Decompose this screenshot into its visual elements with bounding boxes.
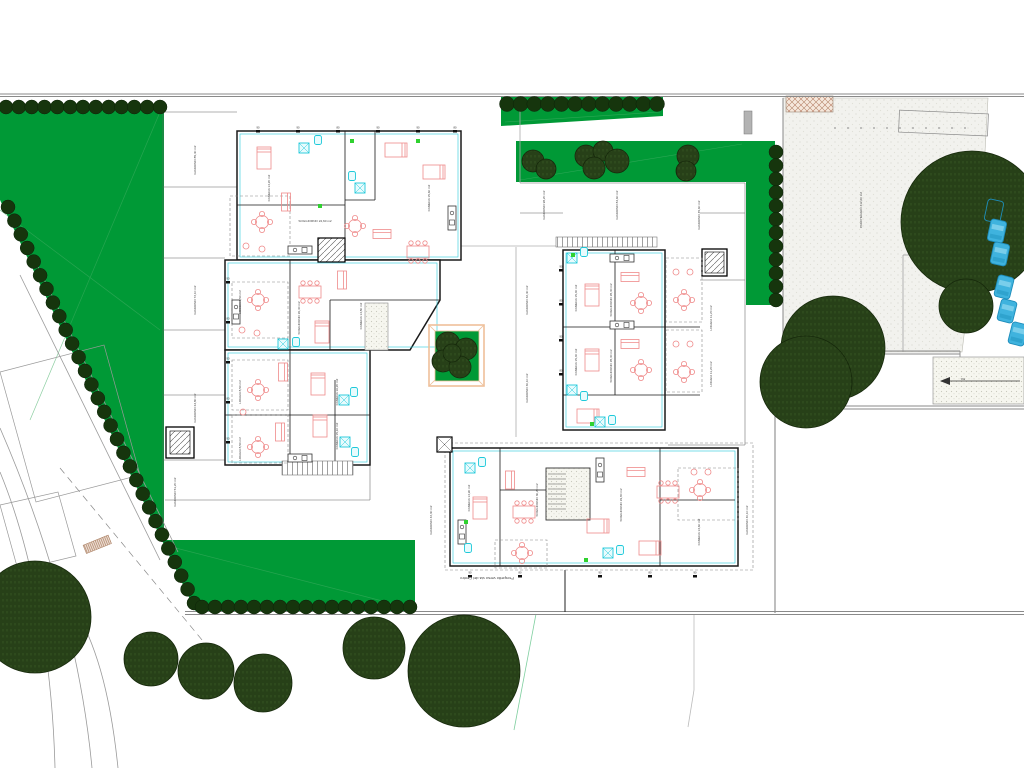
furniture-kit bbox=[288, 246, 312, 254]
plan-label: CAMERA 16,20 m2 bbox=[335, 378, 339, 405]
plan-label: SOGGIORNO 26,40 m2 bbox=[297, 301, 301, 334]
svg-text:80: 80 bbox=[519, 571, 522, 575]
furniture-rtab bbox=[673, 289, 694, 310]
hedge-bush bbox=[102, 100, 116, 114]
hedge-bush bbox=[155, 528, 169, 542]
hedge-bush bbox=[568, 97, 583, 112]
tree bbox=[234, 654, 292, 712]
plan-label: CAMERA 15,40 m2 bbox=[574, 348, 578, 375]
tree bbox=[443, 344, 461, 362]
svg-text:90: 90 bbox=[599, 571, 602, 575]
furniture-chair bbox=[687, 269, 693, 275]
plan-label: CAMERA 14,80 m2 bbox=[359, 302, 363, 329]
hedge-bush bbox=[769, 185, 783, 199]
building-c bbox=[437, 437, 753, 570]
hedge-bush bbox=[636, 97, 651, 112]
hedge-bush bbox=[7, 214, 21, 228]
hedge-bush bbox=[299, 600, 313, 614]
hedge-bush bbox=[142, 500, 156, 514]
plan-label: LOGGIA 11,20 m2 bbox=[709, 305, 713, 330]
hedge-bush bbox=[78, 364, 92, 378]
plan-label: LOGGIA 11,20 m2 bbox=[709, 361, 713, 386]
dim-mark: 90 bbox=[598, 571, 602, 578]
plan-label: SOGGIORNO 29,80 m2 bbox=[619, 488, 623, 521]
furniture-wc bbox=[479, 458, 486, 467]
hedge-bush bbox=[338, 600, 352, 614]
svg-text:80: 80 bbox=[454, 126, 457, 130]
hedge-bush bbox=[153, 100, 167, 114]
hedge-bush bbox=[168, 555, 182, 569]
dim-mark: 90 bbox=[256, 126, 260, 133]
tree bbox=[124, 632, 178, 686]
furniture-grn bbox=[584, 558, 588, 562]
plan-label: CAMERA 13,60 m2 bbox=[697, 518, 701, 545]
furniture-kit bbox=[610, 254, 634, 262]
hedge-bush bbox=[769, 145, 783, 159]
tree bbox=[536, 159, 556, 179]
plan-label: 8% bbox=[961, 377, 966, 381]
hedge-bush bbox=[174, 569, 188, 583]
tree bbox=[676, 161, 696, 181]
plan-label: GIARDINO 51,20 m2 bbox=[173, 477, 177, 506]
plan-label: GIARDINO 42,30 m2 bbox=[429, 505, 433, 534]
stair-core-c bbox=[546, 468, 590, 520]
hedge-bush bbox=[769, 239, 783, 253]
dim-mark: 90 bbox=[559, 265, 563, 272]
hedge-bush bbox=[513, 97, 528, 112]
furniture-grn bbox=[464, 520, 468, 524]
plan-label: PARCHEGGIO 412,60 m2 bbox=[859, 192, 863, 229]
hedge-bush bbox=[769, 266, 783, 280]
furniture-wc bbox=[352, 448, 359, 457]
furniture-wc bbox=[465, 544, 472, 553]
hedge-bush bbox=[33, 268, 47, 282]
car bbox=[997, 298, 1018, 323]
plan-label: LOGGIA 8,50 m2 bbox=[238, 290, 242, 314]
plan-label: GIARDINO 98,20 m2 bbox=[542, 190, 546, 219]
hedge-bush bbox=[14, 227, 28, 241]
plan-label: Prospetto verso via del Centro bbox=[459, 576, 514, 581]
hedge-bush bbox=[136, 487, 150, 501]
building-a bbox=[166, 131, 461, 475]
furniture-rtab bbox=[673, 361, 694, 382]
hedge-bush bbox=[127, 100, 141, 114]
furniture-wc bbox=[609, 416, 616, 425]
plan-label: GIARDINO 45,60 m2 bbox=[697, 200, 701, 229]
hedge-bush bbox=[769, 172, 783, 186]
svg-text:90: 90 bbox=[469, 571, 472, 575]
hedge-bush bbox=[221, 600, 235, 614]
dim-mark: 80 bbox=[559, 369, 563, 376]
hedge-bush bbox=[140, 100, 154, 114]
tree bbox=[760, 336, 852, 428]
dim-mark: 90 bbox=[693, 571, 697, 578]
hedge-bush bbox=[195, 600, 209, 614]
plan-label: CAMERA 14,20 m2 bbox=[267, 174, 271, 201]
svg-text:90: 90 bbox=[297, 126, 300, 130]
hedge-bush bbox=[769, 159, 783, 173]
hedge-bush bbox=[104, 419, 118, 433]
furniture-shower bbox=[603, 548, 613, 558]
stair-tower-b bbox=[702, 249, 727, 276]
hedge-bush bbox=[286, 600, 300, 614]
plan-label: GIARDINO 30,10 m2 bbox=[525, 373, 529, 402]
furniture-wc bbox=[617, 546, 624, 555]
hedge-bush bbox=[38, 100, 52, 114]
tree bbox=[583, 157, 605, 179]
hedge-bush bbox=[52, 309, 66, 323]
svg-text:90: 90 bbox=[377, 126, 380, 130]
dim-mark: 80 bbox=[648, 571, 652, 578]
planter-shaft bbox=[437, 437, 452, 452]
dim-mark: 90 bbox=[226, 277, 230, 284]
svg-text:80: 80 bbox=[649, 571, 652, 575]
furniture-wc bbox=[581, 248, 588, 257]
furniture-kit bbox=[596, 458, 604, 482]
hedge-bush bbox=[527, 97, 542, 112]
dim-mark: 80 bbox=[226, 317, 230, 324]
hedge-bush bbox=[97, 405, 111, 419]
dim-mark: 90 bbox=[226, 357, 230, 364]
plan-label: GIARDINO 72,10 m2 bbox=[193, 285, 197, 314]
plan-label: GIARDINO 85,40 m2 bbox=[193, 145, 197, 174]
hedge-bush bbox=[59, 323, 73, 337]
hedge-bush bbox=[50, 100, 64, 114]
hedge-bush bbox=[650, 97, 665, 112]
furniture-grn bbox=[571, 253, 575, 257]
hedge-bush bbox=[0, 100, 13, 114]
hedge-bush bbox=[769, 199, 783, 213]
svg-text:90: 90 bbox=[257, 126, 260, 130]
building-b bbox=[556, 237, 727, 430]
hedge-bush bbox=[234, 600, 248, 614]
svg-text:90: 90 bbox=[417, 126, 420, 130]
hedge-bush bbox=[312, 600, 326, 614]
hedge-bush bbox=[91, 391, 105, 405]
furniture-kit bbox=[288, 454, 312, 462]
plan-label: GIARDINO 64,80 m2 bbox=[193, 393, 197, 422]
tree bbox=[0, 561, 91, 673]
hedge-bush bbox=[769, 280, 783, 294]
furniture-wc bbox=[315, 136, 322, 145]
furniture-shower bbox=[567, 385, 577, 395]
hedge-bush bbox=[769, 212, 783, 226]
plan-label: LOGGIA 8,50 m2 bbox=[238, 437, 242, 461]
plan-label: GIARDINO 40,10 m2 bbox=[745, 505, 749, 534]
hedge-bush bbox=[63, 100, 77, 114]
hedge-bush bbox=[325, 600, 339, 614]
dim-mark: 80 bbox=[559, 299, 563, 306]
dim-mark: 80 bbox=[226, 397, 230, 404]
dim-mark: 90 bbox=[296, 126, 300, 133]
hedge-bush bbox=[110, 432, 124, 446]
furniture-grn bbox=[318, 204, 322, 208]
furniture-shower bbox=[465, 463, 475, 473]
hedge-bush bbox=[609, 97, 624, 112]
dim-mark: 80 bbox=[453, 126, 457, 133]
hedge-bush bbox=[116, 446, 130, 460]
tree bbox=[178, 643, 234, 699]
hedge-bush bbox=[27, 255, 41, 269]
hedge-bush bbox=[1, 200, 15, 214]
furniture-grn bbox=[416, 139, 420, 143]
loggias-b bbox=[666, 258, 702, 392]
hedge-bush bbox=[76, 100, 90, 114]
dim-mark: 90 bbox=[376, 126, 380, 133]
hedge-bush bbox=[769, 293, 783, 307]
plan-label: SOGGIORNO 30,20 m2 bbox=[535, 483, 539, 516]
furniture-kit bbox=[610, 321, 634, 329]
hedge-bush bbox=[25, 100, 39, 114]
furniture-shower bbox=[595, 417, 605, 427]
hedge-bush bbox=[46, 296, 60, 310]
dim-mark: 80 bbox=[336, 126, 340, 133]
furniture-shower bbox=[339, 395, 349, 405]
hedge-bush bbox=[595, 97, 610, 112]
furniture-chair bbox=[687, 341, 693, 347]
dim-mark: 90 bbox=[226, 437, 230, 444]
furniture-chair bbox=[673, 341, 679, 347]
walkway-steps-b bbox=[556, 237, 657, 247]
plan-label: CAMERA 15,60 m2 bbox=[427, 184, 431, 211]
furniture-kit bbox=[448, 206, 456, 230]
hedge-bush bbox=[89, 100, 103, 114]
svg-text:90: 90 bbox=[694, 571, 697, 575]
furniture-grn bbox=[590, 422, 594, 426]
furniture-wc bbox=[349, 172, 356, 181]
hedge-bush bbox=[161, 541, 175, 555]
hedge-bush bbox=[622, 97, 637, 112]
hedge-bush bbox=[554, 97, 569, 112]
plan-label: CAMERA 15,10 m2 bbox=[335, 422, 339, 449]
dim-mark: 90 bbox=[559, 335, 563, 342]
entry-ramp-hatched bbox=[786, 96, 833, 112]
tree bbox=[939, 279, 993, 333]
stair-tower bbox=[166, 427, 194, 458]
furniture-wc bbox=[581, 392, 588, 401]
hedge-bush bbox=[247, 600, 261, 614]
hedge-bush bbox=[149, 514, 163, 528]
furniture-chair bbox=[673, 269, 679, 275]
hedge-bush bbox=[12, 100, 26, 114]
plan-label: SOGGIORNO 28,30 m2 bbox=[609, 349, 613, 382]
furniture-wc bbox=[351, 388, 358, 397]
tree bbox=[343, 617, 405, 679]
svg-text:80: 80 bbox=[337, 126, 340, 130]
dim-mark: 80 bbox=[518, 571, 522, 578]
hedge-bush bbox=[769, 253, 783, 267]
hedge-bush bbox=[123, 459, 137, 473]
hedge-bush bbox=[390, 600, 404, 614]
furniture-shower bbox=[355, 183, 365, 193]
hedge-bush bbox=[115, 100, 129, 114]
hedge-bush bbox=[208, 600, 222, 614]
hedge-bush bbox=[540, 97, 555, 112]
exit-ramp bbox=[933, 357, 1024, 404]
hedge-bush bbox=[65, 337, 79, 351]
furniture-shower bbox=[340, 437, 350, 447]
site-plan-drawing: 9090809090809080908090809080909080908090… bbox=[0, 0, 1024, 768]
plan-label: SOGGIORNO 28,30 m2 bbox=[609, 283, 613, 316]
plan-label: GIARDINO 32,40 m2 bbox=[525, 285, 529, 314]
hedge-bush bbox=[181, 582, 195, 596]
balcony-hatched bbox=[365, 303, 388, 350]
hedge-bush bbox=[40, 282, 54, 296]
dim-mark: 90 bbox=[416, 126, 420, 133]
hedge-bush bbox=[129, 473, 143, 487]
hedge-bush bbox=[20, 241, 34, 255]
tree bbox=[605, 149, 629, 173]
plan-label: SOGGIORNO 24,60 m2 bbox=[298, 219, 331, 223]
furniture-grn bbox=[350, 139, 354, 143]
plan-label: LOGGIA 8,50 m2 bbox=[238, 380, 242, 404]
furniture-shower bbox=[278, 339, 288, 349]
hedge-bush bbox=[581, 97, 596, 112]
site-plan-canvas: 9090809090809080908090809080909080908090… bbox=[0, 0, 1024, 768]
stairwell bbox=[318, 238, 345, 262]
hedge-bush bbox=[769, 226, 783, 240]
hedge-bush bbox=[500, 97, 515, 112]
walkway-steps bbox=[282, 461, 353, 475]
furniture-shower bbox=[299, 143, 309, 153]
tree bbox=[408, 615, 520, 727]
hedge-bush bbox=[273, 600, 287, 614]
car bbox=[1008, 321, 1024, 346]
gate-post bbox=[744, 111, 752, 134]
plan-label: CAMERA 14,90 m2 bbox=[467, 484, 471, 511]
hedge-bush bbox=[84, 378, 98, 392]
furniture-wc bbox=[293, 338, 300, 347]
plan-label: GIARDINO 84,60 m2 bbox=[615, 190, 619, 219]
hedge-bush bbox=[351, 600, 365, 614]
hedge-bush bbox=[377, 600, 391, 614]
hedge-bush bbox=[260, 600, 274, 614]
hedge-bush bbox=[403, 600, 417, 614]
hedge-bush bbox=[364, 600, 378, 614]
plan-label: CAMERA 15,40 m2 bbox=[574, 284, 578, 311]
hedge-bush bbox=[72, 350, 86, 364]
